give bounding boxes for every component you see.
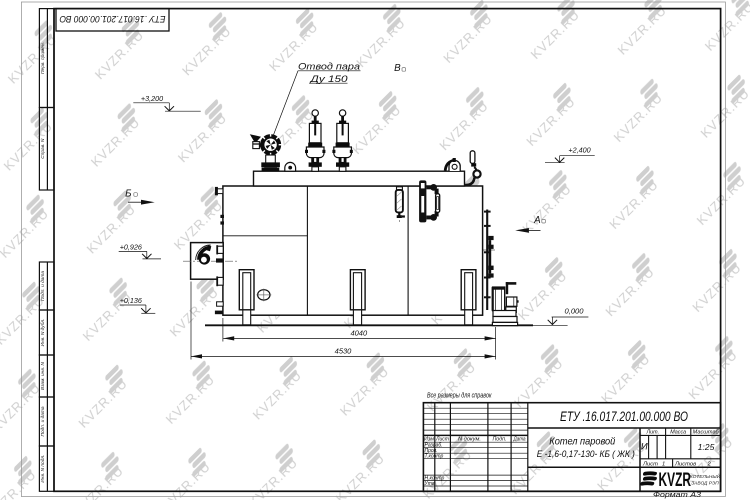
svg-text:Отвод пара: Отвод пара [298, 61, 360, 72]
svg-text:Е -1,6-0,17-130- КБ ( ЖК ): Е -1,6-0,17-130- КБ ( ЖК ) [537, 449, 635, 460]
svg-text:Лист: Лист [642, 461, 658, 467]
svg-text:ЗАВОД РЭП: ЗАВОД РЭП [691, 481, 719, 487]
svg-text:Инв. N подл.: Инв. N подл. [40, 455, 46, 483]
svg-text:Подп. и дата: Подп. и дата [40, 271, 46, 301]
svg-text:И: И [641, 442, 648, 453]
svg-text:Утв.: Утв. [425, 481, 436, 487]
svg-text:+3,200: +3,200 [141, 94, 163, 103]
svg-text:Формат А3: Формат А3 [653, 490, 702, 499]
svg-text:Масса: Масса [670, 430, 686, 436]
svg-text:Б: Б [125, 189, 132, 200]
svg-text:KVZR: KVZR [659, 470, 692, 491]
svg-text:1: 1 [662, 461, 665, 467]
svg-text:4040: 4040 [350, 328, 368, 337]
svg-text:Листов: Листов [674, 461, 696, 467]
svg-text:ЕТУ .16.017.201.00.000 ВО: ЕТУ .16.017.201.00.000 ВО [560, 409, 688, 424]
svg-text:А: А [533, 215, 541, 226]
svg-text:Масштаб: Масштаб [693, 430, 720, 436]
svg-text:N докум.: N докум. [458, 437, 481, 443]
svg-text:Все размеры для справок: Все размеры для справок [427, 390, 492, 399]
svg-text:Подп.: Подп. [493, 437, 507, 443]
svg-text:В: В [394, 63, 401, 74]
svg-text:0,000: 0,000 [564, 307, 584, 316]
svg-text:Дата: Дата [513, 437, 526, 443]
svg-text:Подп. и дата: Подп. и дата [40, 406, 46, 436]
svg-text:Ду 150: Ду 150 [309, 73, 348, 84]
svg-text:Т.контр: Т.контр [425, 453, 444, 459]
svg-text:+0,136: +0,136 [120, 296, 142, 305]
svg-text:+0,926: +0,926 [120, 242, 142, 251]
svg-text:Инв. N дубл.: Инв. N дубл. [40, 319, 46, 347]
svg-text:Взам. инв. N: Взам. инв. N [40, 362, 46, 390]
svg-text:Перв. примен.: Перв. примен. [40, 42, 46, 74]
svg-text:Котел паровой: Котел паровой [549, 435, 615, 447]
svg-text:4530: 4530 [335, 346, 353, 355]
svg-text:+2,400: +2,400 [568, 146, 590, 155]
svg-text:1:25: 1:25 [698, 442, 715, 452]
svg-text:Лит.: Лит. [645, 430, 659, 436]
svg-text:Справ. N: Справ. N [40, 138, 46, 159]
svg-text:ЕТУ .16.017.201.00.000 ВО: ЕТУ .16.017.201.00.000 ВО [60, 14, 166, 24]
